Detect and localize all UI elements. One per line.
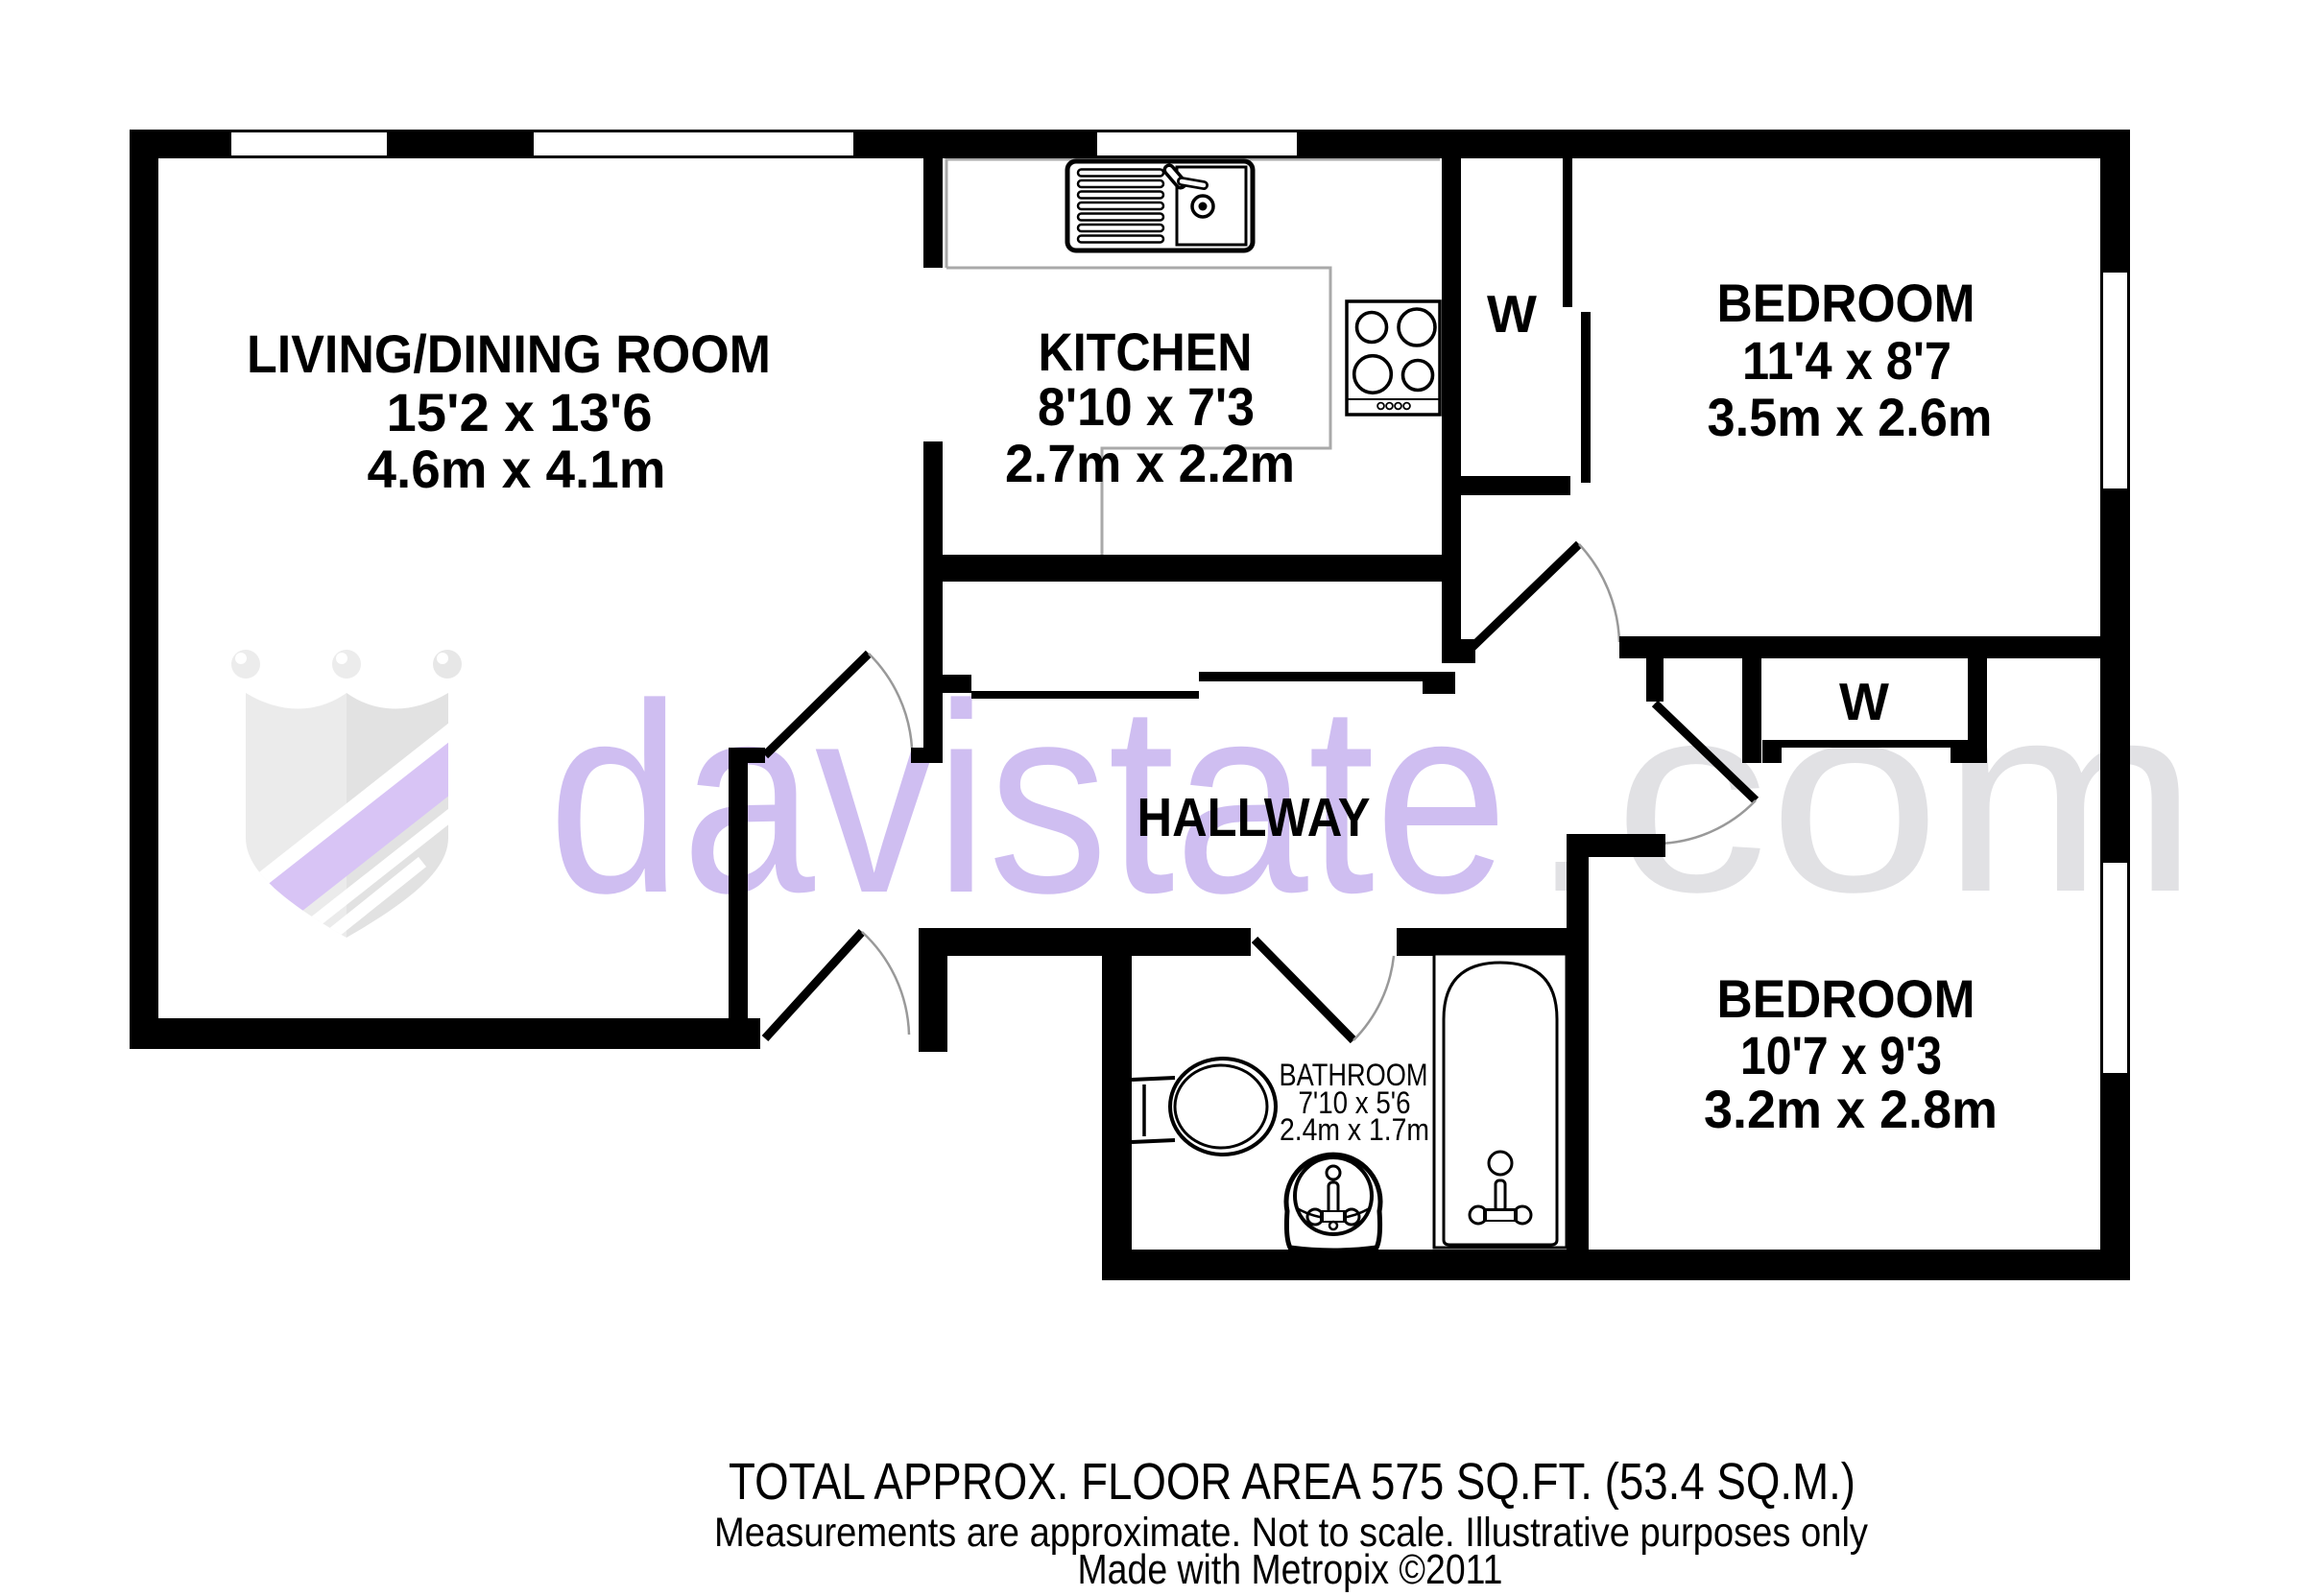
svg-text:2.4m x 1.7m: 2.4m x 1.7m (1280, 1112, 1429, 1147)
svg-text:BEDROOM: BEDROOM (1717, 968, 1975, 1029)
svg-text:HALLWAY: HALLWAY (1137, 787, 1371, 848)
svg-text:3.2m x 2.8m: 3.2m x 2.8m (1704, 1079, 1998, 1139)
svg-text:TOTAL APPROX. FLOOR AREA 575 S: TOTAL APPROX. FLOOR AREA 575 SQ.FT. (53.… (729, 1453, 1855, 1511)
svg-text:Made with Metropix ©2011: Made with Metropix ©2011 (1078, 1546, 1503, 1593)
svg-text:4.6m x 4.1m: 4.6m x 4.1m (368, 439, 666, 499)
svg-text:W: W (1839, 672, 1889, 731)
svg-text:8'10 x 7'3: 8'10 x 7'3 (1038, 376, 1255, 437)
svg-text:11'4 x 8'7: 11'4 x 8'7 (1742, 330, 1951, 391)
svg-text:KITCHEN: KITCHEN (1039, 322, 1253, 382)
svg-text:15'2 x 13'6: 15'2 x 13'6 (387, 382, 653, 442)
svg-text:W: W (1487, 284, 1537, 344)
svg-text:3.5m x 2.6m: 3.5m x 2.6m (1708, 387, 1993, 447)
svg-text:10'7 x 9'3: 10'7 x 9'3 (1740, 1025, 1942, 1085)
svg-text:BEDROOM: BEDROOM (1717, 273, 1975, 333)
svg-text:2.7m x 2.2m: 2.7m x 2.2m (1005, 433, 1295, 493)
svg-text:LIVING/DINING ROOM: LIVING/DINING ROOM (247, 323, 771, 384)
